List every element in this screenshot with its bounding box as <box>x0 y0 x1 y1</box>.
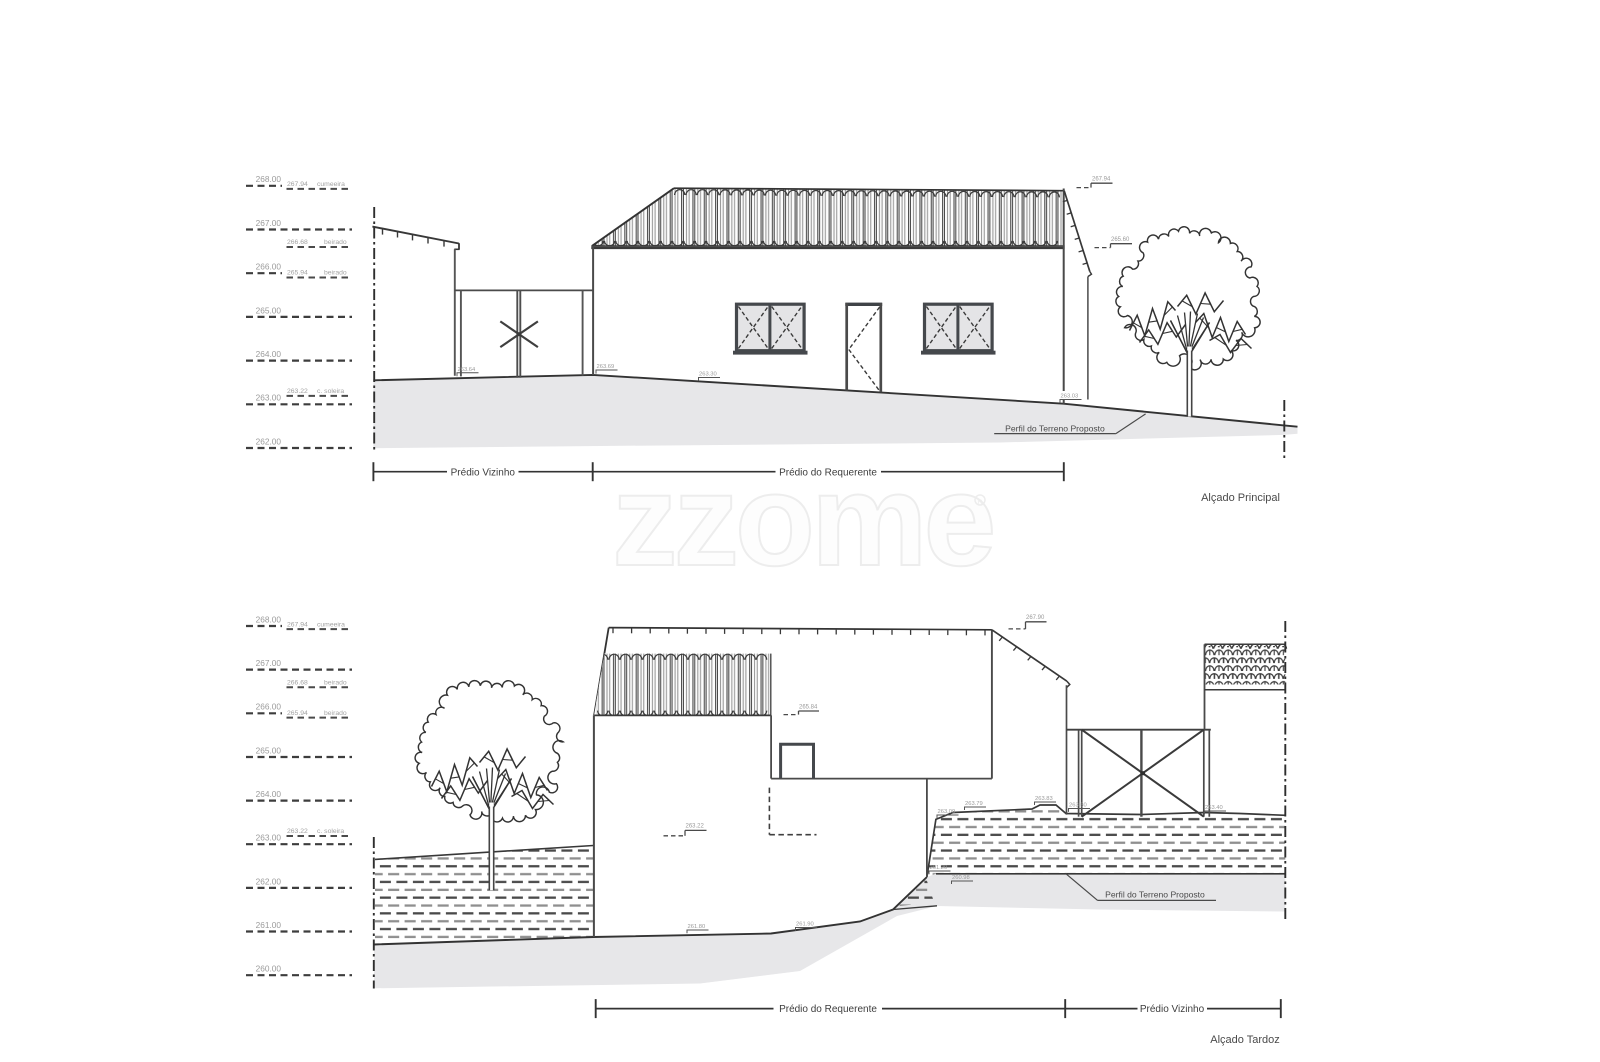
svg-text:267.90: 267.90 <box>1026 615 1045 621</box>
svg-text:261.80: 261.80 <box>688 924 706 930</box>
svg-text:261.90: 261.90 <box>796 922 814 928</box>
svg-text:263.79: 263.79 <box>965 801 983 807</box>
svg-text:263.30: 263.30 <box>699 372 717 378</box>
svg-text:cumeeira: cumeeira <box>317 621 345 628</box>
svg-text:beirado: beirado <box>324 710 347 717</box>
svg-text:268.00: 268.00 <box>256 174 282 184</box>
svg-text:262.00: 262.00 <box>256 436 282 446</box>
svg-text:260.98: 260.98 <box>952 875 970 881</box>
svg-text:263.64: 263.64 <box>458 367 477 373</box>
svg-text:Perfil do Terreno Proposto: Perfil do Terreno Proposto <box>1005 424 1105 434</box>
svg-text:265.00: 265.00 <box>256 305 282 315</box>
svg-text:Prédio do Requerente: Prédio do Requerente <box>779 467 877 478</box>
svg-text:cumeeira: cumeeira <box>317 181 345 188</box>
svg-text:263.03: 263.03 <box>1061 394 1079 400</box>
svg-text:265.60: 265.60 <box>1111 237 1130 243</box>
svg-text:266.00: 266.00 <box>256 702 282 712</box>
svg-text:263.40: 263.40 <box>1205 805 1223 811</box>
svg-text:263.00: 263.00 <box>256 393 282 403</box>
svg-text:268.00: 268.00 <box>256 614 282 624</box>
svg-text:262.00: 262.00 <box>256 876 282 886</box>
svg-text:263.22: 263.22 <box>686 824 705 830</box>
svg-text:263.83: 263.83 <box>1035 796 1053 802</box>
svg-text:267.00: 267.00 <box>256 658 282 668</box>
svg-text:265.00: 265.00 <box>256 745 282 755</box>
svg-text:beirado: beirado <box>324 679 347 686</box>
svg-text:260.00: 260.00 <box>256 964 282 974</box>
svg-text:beirado: beirado <box>324 270 347 277</box>
svg-text:267.94: 267.94 <box>1092 177 1111 183</box>
svg-text:265.94: 265.94 <box>287 710 308 717</box>
svg-text:Prédio Vizinho: Prédio Vizinho <box>451 467 516 478</box>
svg-text:265.84: 265.84 <box>799 704 818 710</box>
svg-text:R: R <box>978 499 983 506</box>
svg-text:beirado: beirado <box>324 239 347 246</box>
svg-text:266.00: 266.00 <box>256 262 282 272</box>
svg-text:Alçado Principal: Alçado Principal <box>1201 492 1280 504</box>
svg-text:c. soleira: c. soleira <box>317 388 344 395</box>
svg-text:c. soleira: c. soleira <box>317 828 344 835</box>
svg-text:263.00: 263.00 <box>256 833 282 843</box>
svg-text:267.94: 267.94 <box>287 621 308 628</box>
svg-text:Perfil do Terreno Proposto: Perfil do Terreno Proposto <box>1105 890 1205 900</box>
svg-text:Prédio Vizinho: Prédio Vizinho <box>1140 1004 1205 1015</box>
svg-text:261.00: 261.00 <box>256 920 282 930</box>
svg-text:263.60: 263.60 <box>1069 803 1087 809</box>
svg-text:261.20: 261.20 <box>930 865 948 871</box>
svg-text:267.94: 267.94 <box>287 181 308 188</box>
svg-text:265.94: 265.94 <box>287 270 308 277</box>
svg-text:263.22: 263.22 <box>287 388 308 395</box>
svg-text:263.22: 263.22 <box>287 828 308 835</box>
svg-text:266.68: 266.68 <box>287 679 308 686</box>
svg-text:Alçado Tardoz: Alçado Tardoz <box>1210 1034 1280 1046</box>
svg-text:Prédio do Requerente: Prédio do Requerente <box>779 1004 877 1015</box>
svg-text:264.00: 264.00 <box>256 789 282 799</box>
svg-text:267.00: 267.00 <box>256 218 282 228</box>
svg-text:263.09: 263.09 <box>938 809 956 815</box>
svg-text:263.69: 263.69 <box>597 364 615 370</box>
svg-text:264.00: 264.00 <box>256 349 282 359</box>
svg-text:266.68: 266.68 <box>287 239 308 246</box>
